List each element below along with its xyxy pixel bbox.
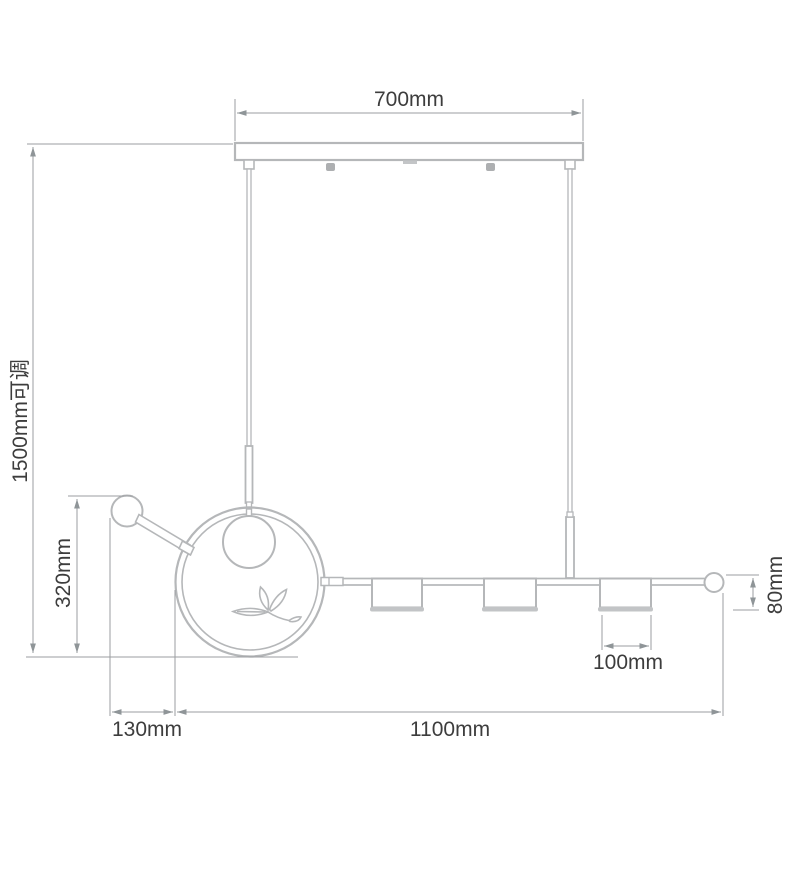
label-fixture-height: 320mm bbox=[52, 528, 76, 618]
suspension-wire-right bbox=[568, 169, 572, 517]
wire-sleeve-left bbox=[246, 446, 253, 503]
label-left-offset: 130mm bbox=[87, 718, 207, 742]
ceiling-plate bbox=[235, 143, 583, 160]
pendant-lamp-fixture bbox=[112, 143, 724, 657]
wire-sleeve-right bbox=[566, 517, 574, 578]
line-drawing bbox=[0, 0, 790, 882]
label-ceiling-width: 700mm bbox=[349, 88, 469, 112]
lamp-shade-2 bbox=[482, 579, 538, 612]
wire-cap-left bbox=[244, 160, 254, 169]
center-tab bbox=[403, 161, 417, 165]
end-ball-right bbox=[705, 573, 724, 592]
wire-sleeve-right-cap bbox=[567, 512, 573, 517]
suspension-wire-left bbox=[247, 169, 251, 446]
label-shade-width: 100mm bbox=[568, 651, 688, 675]
dim-shade-width bbox=[602, 615, 651, 650]
lamp-shade-1 bbox=[370, 579, 424, 612]
dim-left-offset bbox=[110, 518, 175, 716]
ring-bar-connector bbox=[321, 578, 343, 586]
dim-shade-height bbox=[726, 575, 759, 610]
mount-nub-left bbox=[326, 163, 335, 171]
label-shade-height: 80mm bbox=[764, 545, 788, 625]
lamp-shade-3 bbox=[598, 579, 653, 612]
glass-globe-lamp bbox=[223, 516, 275, 568]
label-drop-height: 1500mm可调 bbox=[9, 336, 33, 506]
mount-nub-right bbox=[486, 163, 495, 171]
wire-sleeve-left-cap bbox=[247, 502, 252, 507]
dimension-lines bbox=[26, 99, 759, 716]
wire-cap-right bbox=[565, 160, 575, 169]
dimension-diagram: 700mm 1500mm可调 320mm 130mm 1100mm 100mm … bbox=[0, 0, 790, 882]
label-bar-length: 1100mm bbox=[380, 718, 520, 742]
